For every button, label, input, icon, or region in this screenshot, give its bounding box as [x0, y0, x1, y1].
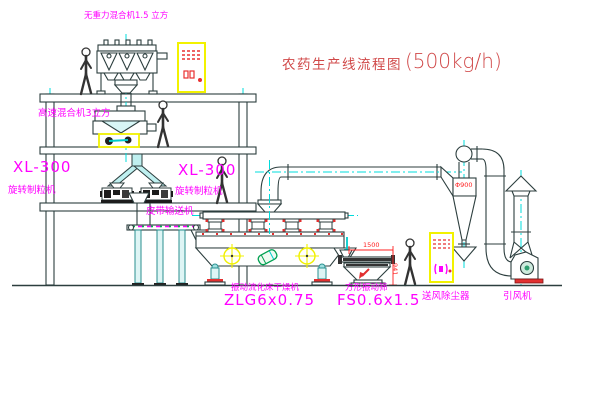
label-high-speed-mixer: 高速混合机3立方 [38, 109, 111, 119]
label-dust-collector: 送风除尘器 [422, 292, 470, 302]
fluid-bed-dryer [192, 212, 358, 285]
dimension-screen-length: 1500 [363, 242, 380, 249]
label-screen-model: FS0.6x1.5 [337, 293, 420, 308]
label-fan: 引风机 [503, 292, 532, 302]
person-figure [158, 101, 168, 147]
label-dryer-model: ZLG6x0.75 [224, 293, 315, 308]
person-figure [81, 48, 91, 94]
vibrating-screen [338, 250, 395, 286]
label-granulator-right-name: 旋转制粒机 [175, 187, 223, 197]
control-cabinet-top [178, 43, 205, 92]
dimension-screen-height: 941 [392, 263, 399, 275]
cad-flow-diagram: 农药生产线流程图 (500kg/h) 无重力混合机1.5 立方 高速混合机3立方… [0, 0, 600, 403]
belt-conveyor [127, 225, 207, 286]
induced-draft-fan [511, 252, 543, 283]
fan-duct [471, 146, 512, 276]
label-belt-conveyor: 皮带输送机 [146, 207, 194, 217]
y-chute [108, 154, 166, 186]
label-granulator-left-model: XL-300 [13, 160, 71, 175]
title-text: 农药生产线流程图 [282, 53, 402, 73]
control-cabinet-right [430, 233, 453, 282]
diagram-title: 农药生产线流程图 (500kg/h) [282, 49, 502, 73]
label-granulator-left-name: 旋转制粒机 [8, 186, 56, 196]
label-gravity-mixer: 无重力混合机1.5 立方 [84, 12, 168, 21]
label-granulator-right-model: XL-300 [178, 163, 236, 178]
title-capacity: (500kg/h) [405, 49, 502, 73]
person-figure [405, 239, 415, 285]
dimension-cyclone-diameter: Φ900 [455, 182, 473, 189]
